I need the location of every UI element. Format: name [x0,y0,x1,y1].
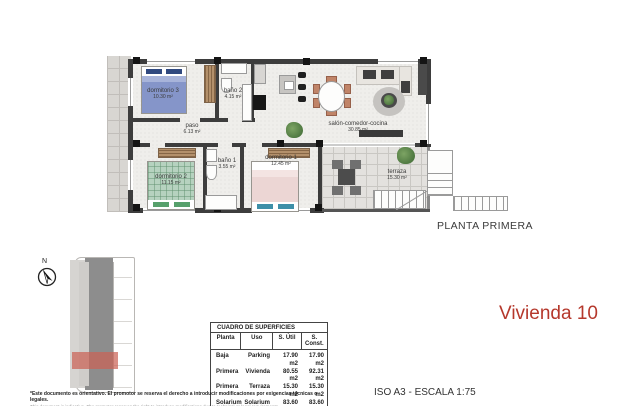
bed-fold [252,170,298,177]
dining-chair [344,98,351,108]
terrace-chair [350,186,361,195]
kitchen-island [279,75,296,94]
exterior-stairs [453,196,508,211]
wall [128,118,180,122]
site-plan [62,256,138,394]
column [214,57,221,64]
bar-stool [298,72,306,78]
column [303,58,310,65]
kitchen-cooktop [253,95,266,110]
column [133,204,140,211]
wall [165,143,218,147]
room-label-dormitorio-3: dormitorio 3 10.30 m² [147,88,179,101]
room-label-salon: salón-comedor-cocina 30.85 m² [328,121,387,134]
header-util: S. Útil [273,333,301,349]
column [315,204,322,211]
plant [286,122,303,138]
terraza-stairs [373,190,426,209]
window [378,59,418,64]
window [128,78,133,106]
bed-fold [142,76,186,82]
sofa-cushion [401,81,410,93]
wall [418,63,427,95]
dining-table [318,81,345,112]
bath-bano-2 [242,84,252,121]
stair-landing [427,150,453,196]
kitchen-sink [284,81,294,90]
sofa-cushion [363,70,376,79]
room-label-dormitorio-2: dormitorio 2 11.15 m² [155,174,187,187]
terraza-glass-door [322,143,415,147]
bar-stool [298,96,306,102]
wardrobe-dormitorio-2 [158,148,196,158]
dining-chair [344,84,351,94]
site-right-column [113,262,132,388]
site-highlight-unit [72,352,118,369]
header-const: S. Const. [302,333,327,349]
site-core [85,258,113,390]
bar-stool [298,84,306,90]
bath-bano-1 [205,195,237,210]
disclaimer-es: *Este documento es orientativo. El promo… [30,391,330,404]
bed-pillow [278,204,294,209]
sink-bano-1 [206,149,217,162]
column [316,140,323,147]
sofa-cushion [381,70,394,79]
disclaimer: *Este documento es orientativo. El promo… [30,391,330,406]
terrace-chair [332,160,343,169]
north-indicator: N [36,258,60,294]
bed-pillow [257,204,273,209]
plan-sheet: dormitorio 3 10.30 m² baño 2 4.15 m² pas… [0,0,620,406]
column [420,57,427,64]
plant [384,95,394,105]
surfaces-table-title: CUADRO DE SUPERFICIES [211,323,327,333]
plant [397,147,415,164]
bed-pillow [146,69,162,74]
wall [262,143,322,147]
toilet-bano-1 [206,165,217,180]
window [426,104,431,144]
bed-pillow [166,69,182,74]
stair-treads [428,171,452,195]
terrace-chair [350,160,361,169]
room-label-terraza: terraza 15.30 m² [387,169,407,182]
bed-pillow [153,202,169,207]
room-label-dormitorio-1: dormitorio 1 12.45 m² [265,155,297,168]
column [133,57,140,64]
kitchen-appliance-tower [254,64,266,84]
sink-bano-2 [221,63,247,74]
room-label-bano-2: baño 2 4.15 m² [224,88,242,101]
header-planta: Planta [211,333,241,349]
window [128,160,133,190]
column [133,140,140,147]
table-row: Baja Parking 17.90 m2 17.90 m2 [211,353,327,369]
plan-title: PLANTA PRIMERA [437,220,533,232]
window [147,59,195,64]
surfaces-table-header: Planta Uso S. Útil S. Const. [211,333,327,350]
terrace-table [338,169,355,185]
header-uso: Uso [241,333,273,349]
compass-icon [36,266,58,288]
bed-dormitorio-1 [251,161,299,212]
wall [240,143,244,213]
room-label-paso: paso 6.13 m² [184,123,201,136]
unit-title: Vivienda 10 [499,303,598,325]
column [277,140,284,147]
wall [218,118,228,122]
table-row: Primera Vivienda 80.55 m2 92.31 m2 [211,369,327,385]
wardrobe-dormitorio-3 [204,65,216,103]
north-label: N [42,258,60,265]
scale-label: ISO A3 - ESCALA 1:75 [374,387,476,398]
room-label-bano-1: baño 1 3.55 m² [218,158,236,171]
terrace-chair [332,186,343,195]
column [420,140,427,147]
wall [318,143,322,213]
bed-pillow [174,202,190,207]
